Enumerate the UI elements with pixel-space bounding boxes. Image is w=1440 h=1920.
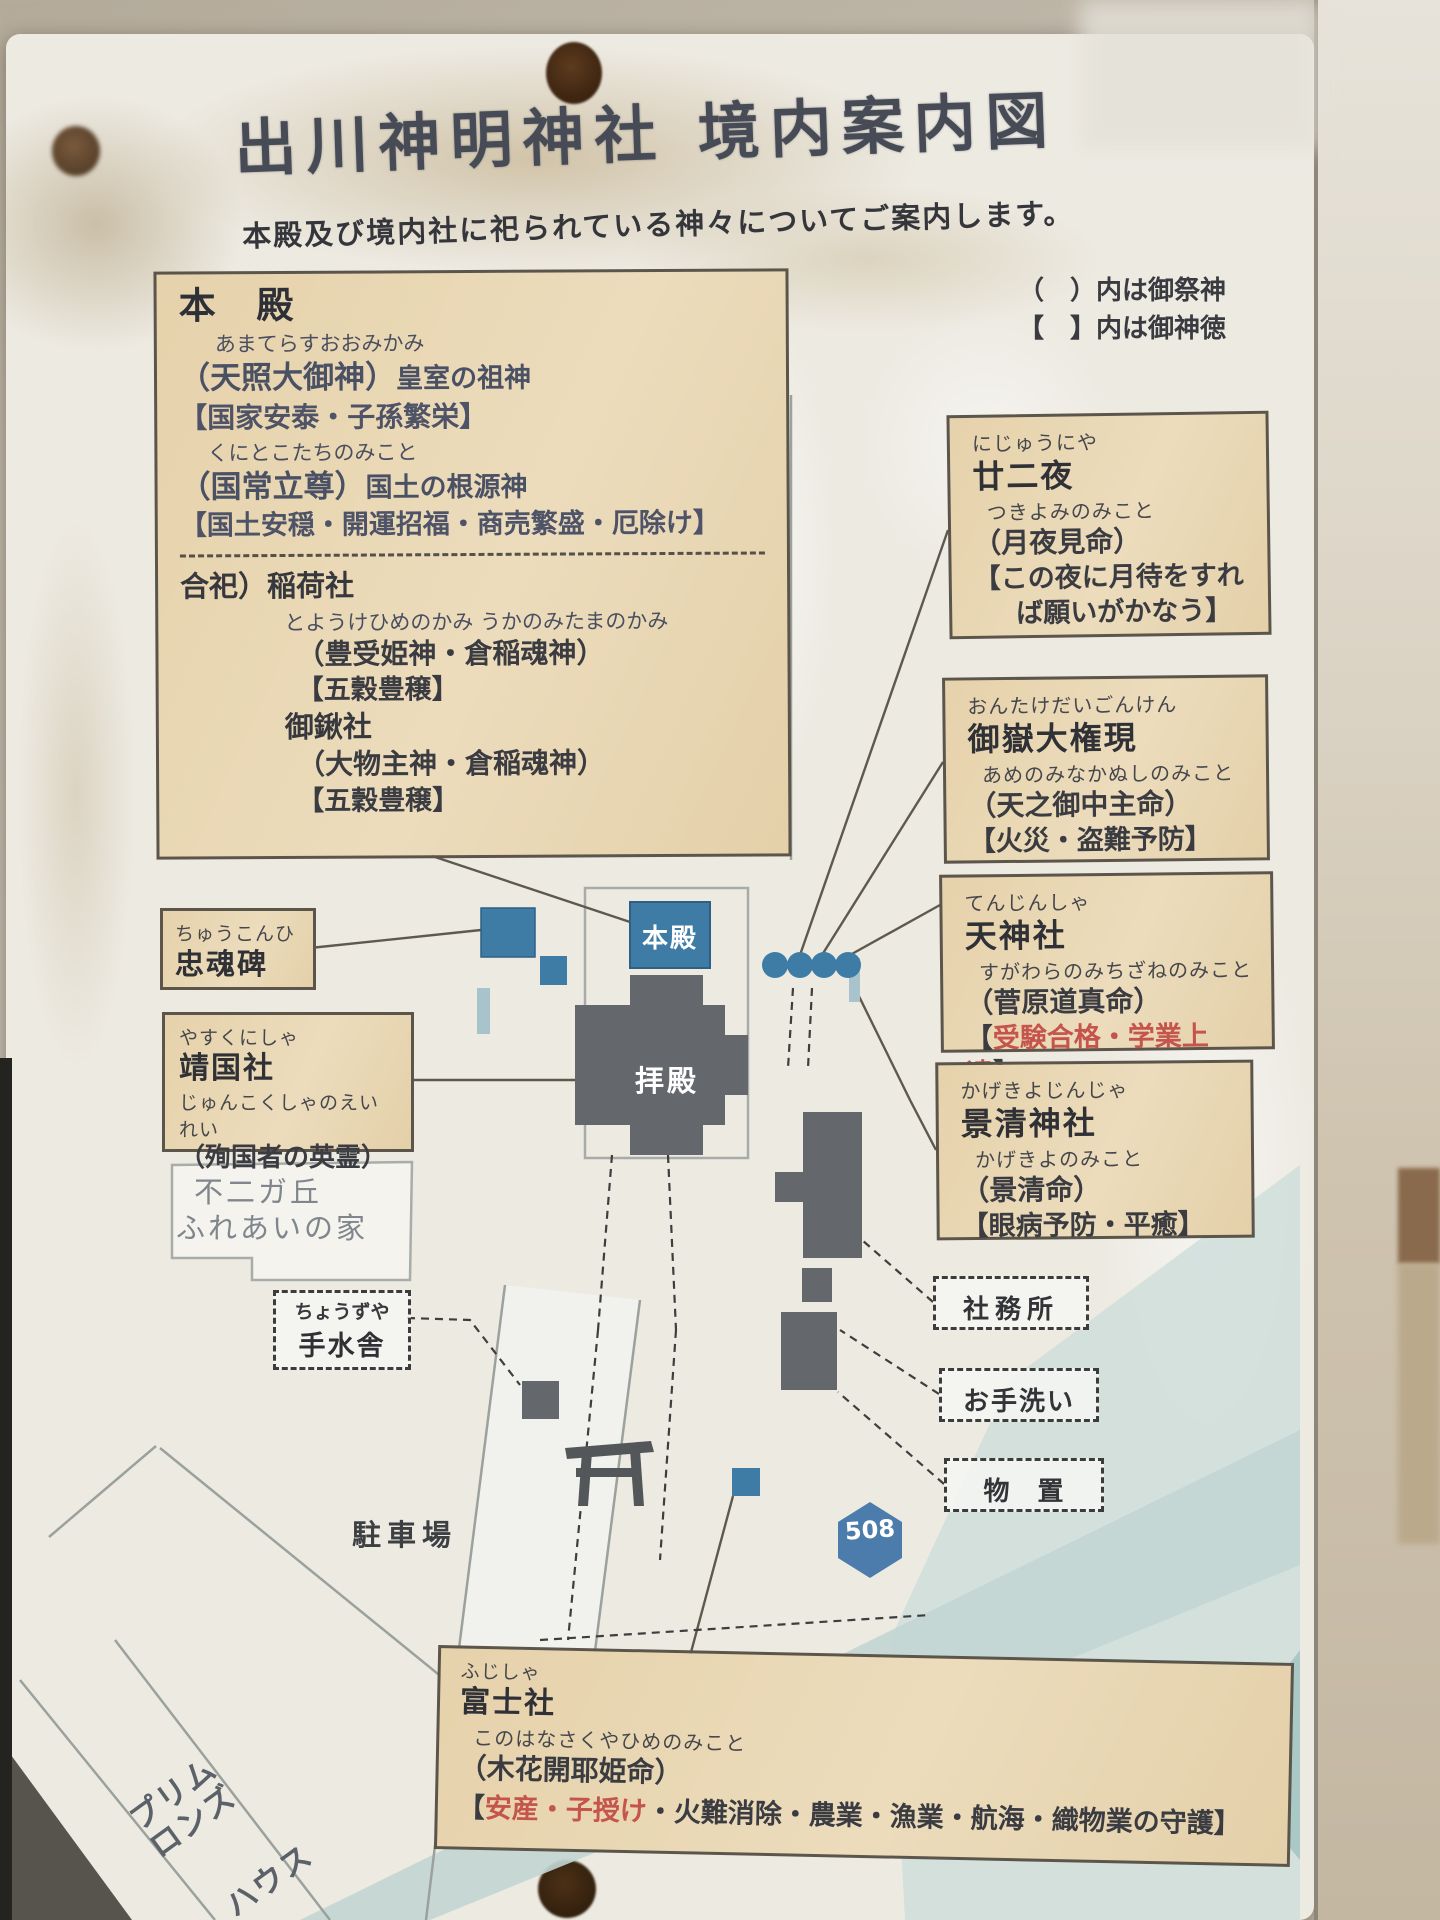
virtue-line: ば願いがかなう】 (1016, 594, 1250, 632)
bracket: 【 (457, 1792, 485, 1824)
otearai-map-label: お手洗い (939, 1368, 1099, 1422)
wood-patch (1398, 1264, 1440, 1544)
furigana: あまてらすおおみかみ (215, 326, 768, 359)
photo-edge (0, 1058, 12, 1920)
deity-line: （天照大御神）皇室の祖神 (179, 356, 768, 400)
furigana: くにとこたちのみこと (207, 435, 768, 468)
map-approach-path (455, 1285, 640, 1690)
chukonhi-info-box: ちゅうこんひ 忠魂碑 (160, 908, 316, 990)
furigana: ちゅうこんひ (175, 919, 301, 946)
shamusho-map-label: 社務所 (933, 1276, 1089, 1330)
honden-heading: 本 殿 (179, 281, 768, 328)
furigana: つきよみのみこと (987, 493, 1249, 526)
deity-name: （殉国者の英霊） (179, 1142, 397, 1176)
deity-line: （国常立尊）国土の根源神 (179, 465, 768, 509)
chozuya-map-label: ちょうずや 手水舎 (273, 1290, 411, 1370)
virtue-line: 【火災・盗難予防】 (969, 822, 1249, 860)
deity-note: 国土の根源神 (366, 472, 528, 504)
furigana: てんじんしゃ (964, 884, 1252, 916)
monument-name: 忠魂碑 (175, 946, 301, 982)
legend-shintoku: 【 】内は御神徳 (1018, 310, 1226, 348)
furigana: おんたけだいごんけん (967, 688, 1247, 720)
furigana: かげきよじんじゃ (960, 1073, 1232, 1104)
haiden-map-label: 拝殿 (595, 1058, 739, 1100)
virtue-text: ・火難消除・農業・漁業・航海・織物業の守護】 (646, 1796, 1241, 1839)
deity-name: （天照大御神） (179, 360, 396, 397)
ontake-info-box: おんたけだいごんけん 御嶽大権現 あめのみなかぬしのみこと （天之御中主命） 【… (942, 674, 1270, 863)
goshi-line: 合祀）稲荷社 (180, 565, 769, 607)
bracket: 【 (966, 1024, 993, 1055)
shrine-name: 景清神社 (961, 1102, 1233, 1144)
shamusho-name: 社務所 (936, 1289, 1086, 1326)
yasukuni-info-box: やすくにしゃ 靖国社 じゅんこくしゃのえいれい （殉国者の英霊） (162, 1012, 414, 1152)
deity-name: （天之御中主命） (968, 786, 1248, 825)
wall-right-strip (1314, 0, 1440, 1920)
fujigaoka-line1: 不二ガ丘 (194, 1174, 368, 1210)
virtue-line: 【国家安泰・子孫繁栄】 (179, 397, 768, 438)
kagekiyo-info-box: かげきよじんじゃ 景清神社 かげきよのみこと （景清命） 【眼病予防・平癒】 (935, 1060, 1255, 1241)
furigana: かげきよのみこと (975, 1142, 1233, 1173)
nijuuniya-info-box: にじゅうにや 廿二夜 つきよみのみこと （月夜見命） 【この夜に月待をすれ ば願… (946, 411, 1271, 639)
deity-name: （月夜見命） (973, 522, 1249, 562)
furigana: にじゅうにや (972, 424, 1248, 457)
legend-saijin: （ ）内は御祭神 (1018, 272, 1226, 310)
shrine-name: 廿二夜 (972, 453, 1249, 497)
shrine-name: 天神社 (965, 913, 1253, 956)
deity-name: （景清命） (961, 1171, 1233, 1210)
parking-label: 駐車場 (352, 1512, 457, 1554)
honden-info-box: 本 殿 あまてらすおおみかみ （天照大御神）皇室の祖神 【国家安泰・子孫繁栄】 … (153, 268, 791, 859)
furigana: じゅんこくしゃのえいれい (179, 1088, 397, 1142)
deity-note: 皇室の祖神 (396, 363, 531, 395)
virtue-line: 【国土安穏・開運招福・商売繁盛・厄除け】 (180, 505, 769, 545)
furigana: あめのみなかぬしのみこと (982, 757, 1248, 789)
virtue-line: 【この夜に月待をすれ (974, 558, 1250, 597)
deity-name: （国常立尊） (180, 469, 366, 506)
shrine-name: 御嶽大権現 (967, 717, 1247, 760)
deity-name: （菅原道真命） (965, 982, 1253, 1021)
furigana: やすくにしゃ (179, 1023, 397, 1050)
fujigaoka-label: 不二ガ丘 ふれあいの家 (194, 1174, 368, 1246)
fujigaoka-line2: ふれあいの家 (176, 1210, 368, 1246)
legend: （ ）内は御祭神 【 】内は御神徳 (1018, 272, 1226, 348)
virtue-red-text: 安産・子授け (484, 1793, 647, 1827)
virtue-line: 【五穀豊穣】 (297, 670, 770, 708)
tenjin-info-box: てんじんしゃ 天神社 すがわらのみちざねのみこと （菅原道真命） 【受験合格・学… (939, 871, 1275, 1052)
virtue-line: 【五穀豊穣】 (297, 781, 770, 819)
route-number-label: 508 (839, 1514, 901, 1546)
virtue-line: 【眼病予防・平癒】 (962, 1207, 1234, 1244)
wall-top-right (1080, 0, 1320, 150)
otearai-name: お手洗い (942, 1381, 1096, 1418)
fujisha-info-box: ふじしゃ 富士社 このはなさくやひめのみこと （木花開耶姫命） 【安産・子授け・… (434, 1645, 1294, 1867)
furigana: すがわらのみちざねのみこと (979, 953, 1253, 985)
deity-name: （大物主神・倉稲魂神） (297, 745, 770, 784)
monooki-name: 物 置 (947, 1471, 1101, 1508)
furigana: とようけひめのかみ うかのみたまのかみ (284, 604, 769, 637)
shrine-sign-board: 出川神明神社 境内案内図 本殿及び境内社に祀られている神々についてご案内します。… (6, 34, 1314, 1920)
shrine-name: 靖国社 (179, 1050, 397, 1088)
wood-patch (1398, 1168, 1440, 1264)
chozuya-name: 手水舎 (276, 1324, 408, 1363)
deity-name: （豊受姫神・倉稲魂神） (296, 634, 769, 673)
furigana: ちょうずや (276, 1297, 408, 1324)
monooki-map-label: 物 置 (944, 1458, 1104, 1512)
honden-map-label: 本殿 (630, 918, 710, 955)
divider (180, 552, 765, 558)
shrine-name: 御鍬社 (285, 706, 770, 748)
